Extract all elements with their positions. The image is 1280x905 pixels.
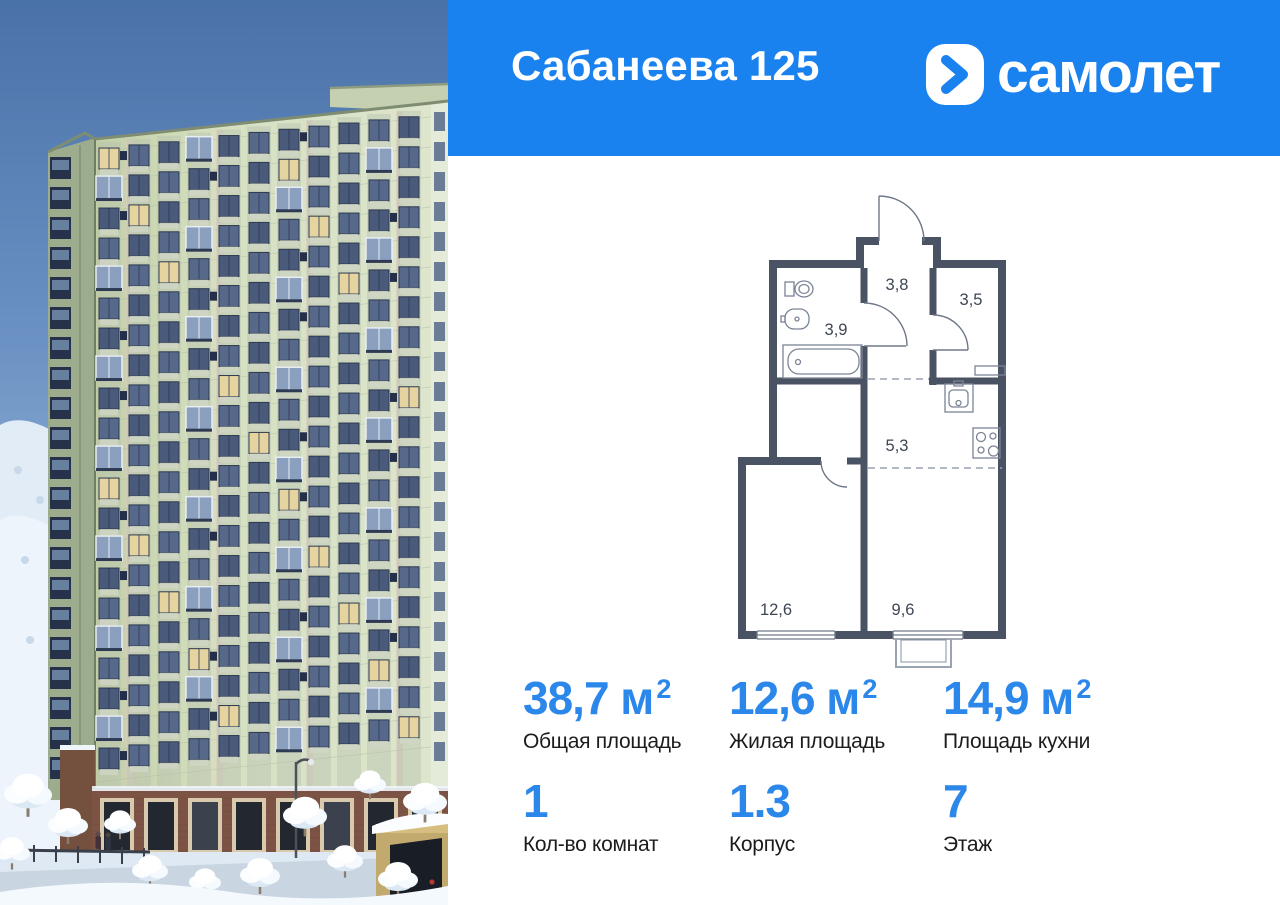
- listing-card: Сабанеева 125 самолет: [448, 0, 1280, 905]
- stat-total-area: 38,7 м2 Общая площадь: [523, 674, 728, 754]
- room-area-label: 3,9: [825, 321, 848, 339]
- stat-label: Общая площадь: [523, 730, 728, 754]
- stat-label: Этаж: [943, 833, 1148, 857]
- stat-label: Площадь кухни: [943, 730, 1148, 754]
- plan-balcony: [896, 639, 951, 667]
- stat-floor: 7 Этаж: [943, 777, 1148, 857]
- room-area-label: 12,6: [760, 601, 792, 619]
- stat-label: Кол-во комнат: [523, 833, 728, 857]
- bathroom-fixtures: [781, 281, 862, 378]
- stat-label: Жилая площадь: [729, 730, 934, 754]
- stat-label: Корпус: [729, 833, 934, 857]
- kitchen-fixtures: [945, 381, 1000, 458]
- stat-value: 38,7 м2: [523, 674, 728, 722]
- room-area-label: 3,5: [960, 291, 983, 309]
- stat-kitchen-area: 14,9 м2 Площадь кухни: [943, 674, 1148, 754]
- stat-building: 1.3 Корпус: [729, 777, 934, 857]
- floor-plan: 3,8 3,5 3,9 5,3 12,6 9,6: [700, 183, 1020, 683]
- room-area-label: 3,8: [886, 276, 909, 294]
- facade-windows: [50, 111, 445, 788]
- building-photo: [0, 0, 448, 905]
- room-area-label: 5,3: [886, 437, 909, 455]
- stat-living-area: 12,6 м2 Жилая площадь: [729, 674, 934, 754]
- stat-value: 7: [943, 777, 1148, 825]
- page-title: Сабанеева 125: [511, 42, 820, 90]
- stat-value: 14,9 м2: [943, 674, 1148, 722]
- card-header: Сабанеева 125 самолет: [448, 0, 1280, 156]
- stat-value: 1: [523, 777, 728, 825]
- stat-rooms: 1 Кол-во комнат: [523, 777, 728, 857]
- stat-value: 1.3: [729, 777, 934, 825]
- samolet-wordmark: самолет: [997, 44, 1220, 102]
- samolet-logo[interactable]: самолет: [926, 44, 1220, 105]
- room-area-label: 9,6: [892, 601, 915, 619]
- samolet-logo-icon: [926, 44, 984, 105]
- stat-value: 12,6 м2: [729, 674, 934, 722]
